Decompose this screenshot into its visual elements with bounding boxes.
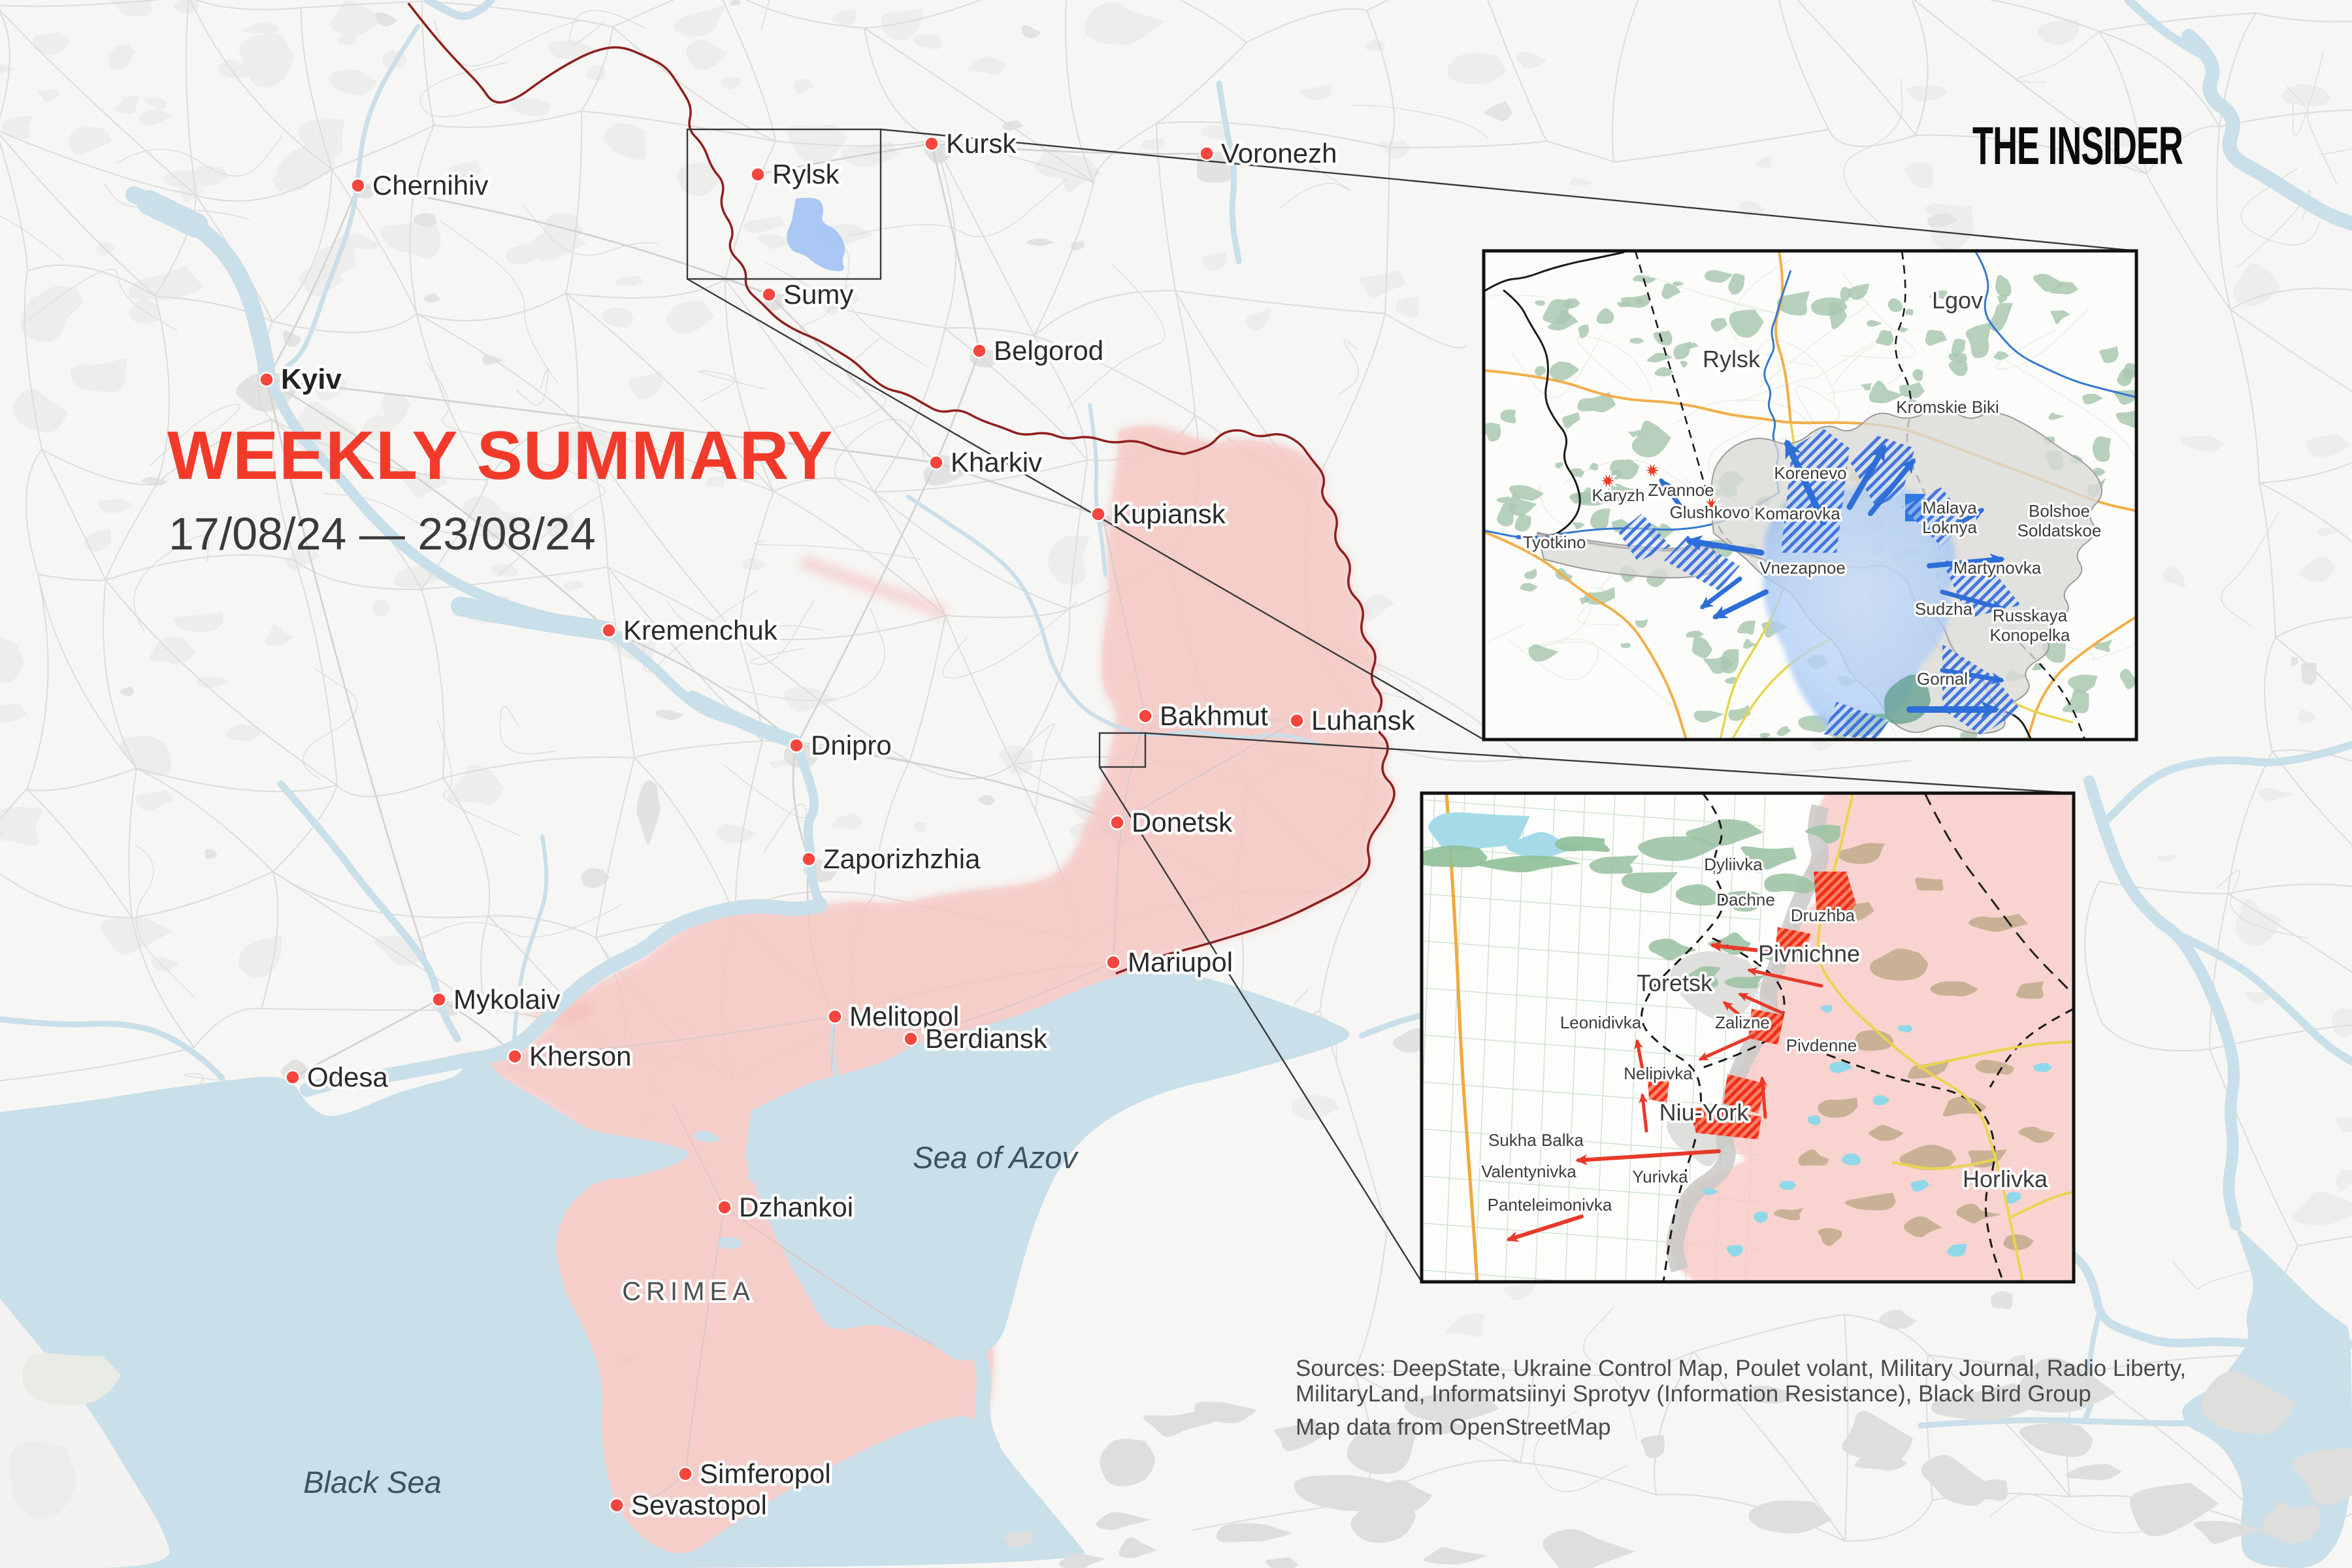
- svg-text:Gornal: Gornal: [1917, 669, 1968, 689]
- svg-text:Belgorod: Belgorod: [994, 335, 1103, 366]
- svg-text:Berdiansk: Berdiansk: [925, 1023, 1048, 1054]
- svg-text:Druzhba: Druzhba: [1791, 906, 1855, 925]
- svg-text:Toretsk: Toretsk: [1637, 970, 1713, 996]
- svg-text:Rylsk: Rylsk: [772, 159, 840, 189]
- svg-text:Black Sea: Black Sea: [303, 1465, 442, 1499]
- svg-text:THE INSIDER: THE INSIDER: [1972, 116, 2183, 176]
- svg-text:Komarovka: Komarovka: [1754, 504, 1840, 523]
- svg-text:Kromskie Biki: Kromskie Biki: [1896, 397, 1999, 417]
- svg-text:Nelipivka: Nelipivka: [1624, 1064, 1693, 1083]
- svg-text:Luhansk: Luhansk: [1311, 705, 1416, 736]
- svg-text:Donetsk: Donetsk: [1132, 807, 1233, 838]
- svg-text:Niu-York: Niu-York: [1659, 1099, 1750, 1126]
- svg-text:Vnezapnoe: Vnezapnoe: [1759, 558, 1846, 578]
- svg-text:Sea of Azov: Sea of Azov: [913, 1140, 1079, 1175]
- svg-text:Dachne: Dachne: [1716, 890, 1775, 909]
- svg-text:Kupiansk: Kupiansk: [1113, 498, 1226, 529]
- svg-text:Valentynivka: Valentynivka: [1481, 1162, 1576, 1181]
- svg-text:Malaya: Malaya: [1922, 498, 1977, 517]
- svg-text:Sources: DeepState, Ukraine Co: Sources: DeepState, Ukraine Control Map,…: [1296, 1356, 2186, 1381]
- svg-text:Kharkiv: Kharkiv: [951, 447, 1042, 478]
- svg-text:Dzhankoi: Dzhankoi: [739, 1192, 853, 1222]
- svg-text:Voronezh: Voronezh: [1221, 138, 1337, 169]
- svg-text:Sumy: Sumy: [783, 279, 853, 310]
- svg-text:Kursk: Kursk: [946, 128, 1017, 159]
- svg-text:Mykolaiv: Mykolaiv: [453, 984, 560, 1015]
- svg-text:Glushkovo: Glushkovo: [1670, 502, 1750, 522]
- svg-text:Chernihiv: Chernihiv: [372, 170, 488, 201]
- svg-text:Odesa: Odesa: [307, 1062, 388, 1092]
- svg-text:Lgov: Lgov: [1932, 287, 1983, 314]
- svg-text:Yurivka: Yurivka: [1632, 1167, 1688, 1186]
- svg-text:Soldatskoe: Soldatskoe: [2017, 521, 2102, 540]
- svg-text:Panteleimonivka: Panteleimonivka: [1488, 1195, 1612, 1215]
- svg-text:CRIMEA: CRIMEA: [622, 1277, 755, 1306]
- svg-text:Zaporizhzhia: Zaporizhzhia: [823, 843, 981, 874]
- svg-text:Martynovka: Martynovka: [1953, 558, 2042, 578]
- svg-text:Korenevo: Korenevo: [1774, 463, 1846, 483]
- svg-text:Pivnichne: Pivnichne: [1758, 940, 1860, 967]
- svg-text:MilitaryLand, Informatsiinyi S: MilitaryLand, Informatsiinyi Sprotyv (In…: [1296, 1381, 2091, 1407]
- svg-text:Karyzh: Karyzh: [1592, 485, 1645, 505]
- svg-text:Kyiv: Kyiv: [281, 363, 342, 395]
- svg-text:Horlivka: Horlivka: [1963, 1166, 2048, 1192]
- svg-text:Sukha Balka: Sukha Balka: [1488, 1130, 1584, 1150]
- svg-text:Zvannoe: Zvannoe: [1648, 480, 1714, 500]
- svg-text:Kremenchuk: Kremenchuk: [623, 615, 778, 645]
- svg-text:Tyotkino: Tyotkino: [1523, 532, 1586, 552]
- svg-text:Bakhmut: Bakhmut: [1160, 700, 1268, 731]
- svg-text:Map data from OpenStreetMap: Map data from OpenStreetMap: [1296, 1414, 1610, 1440]
- svg-text:Simferopol: Simferopol: [700, 1458, 831, 1489]
- svg-text:WEEKLY SUMMARY: WEEKLY SUMMARY: [167, 417, 833, 494]
- svg-text:Dyliivka: Dyliivka: [1704, 855, 1763, 874]
- svg-text:Kherson: Kherson: [529, 1041, 631, 1071]
- svg-text:Dnipro: Dnipro: [811, 730, 892, 760]
- svg-text:17/08/24 — 23/08/24: 17/08/24 — 23/08/24: [169, 508, 596, 559]
- svg-text:Zalizne: Zalizne: [1715, 1013, 1770, 1032]
- svg-text:Bolshoe: Bolshoe: [2029, 501, 2090, 521]
- svg-text:Konopelka: Konopelka: [1990, 625, 2070, 645]
- svg-text:Sudzha: Sudzha: [1915, 599, 1973, 619]
- svg-text:Russkaya: Russkaya: [1993, 606, 2068, 625]
- svg-text:Mariupol: Mariupol: [1128, 947, 1233, 977]
- svg-text:Rylsk: Rylsk: [1703, 346, 1761, 372]
- svg-text:Pivdenne: Pivdenne: [1786, 1036, 1857, 1055]
- svg-text:Leonidivka: Leonidivka: [1560, 1013, 1642, 1032]
- svg-text:Sevastopol: Sevastopol: [631, 1490, 767, 1520]
- svg-text:Loknya: Loknya: [1922, 517, 1977, 537]
